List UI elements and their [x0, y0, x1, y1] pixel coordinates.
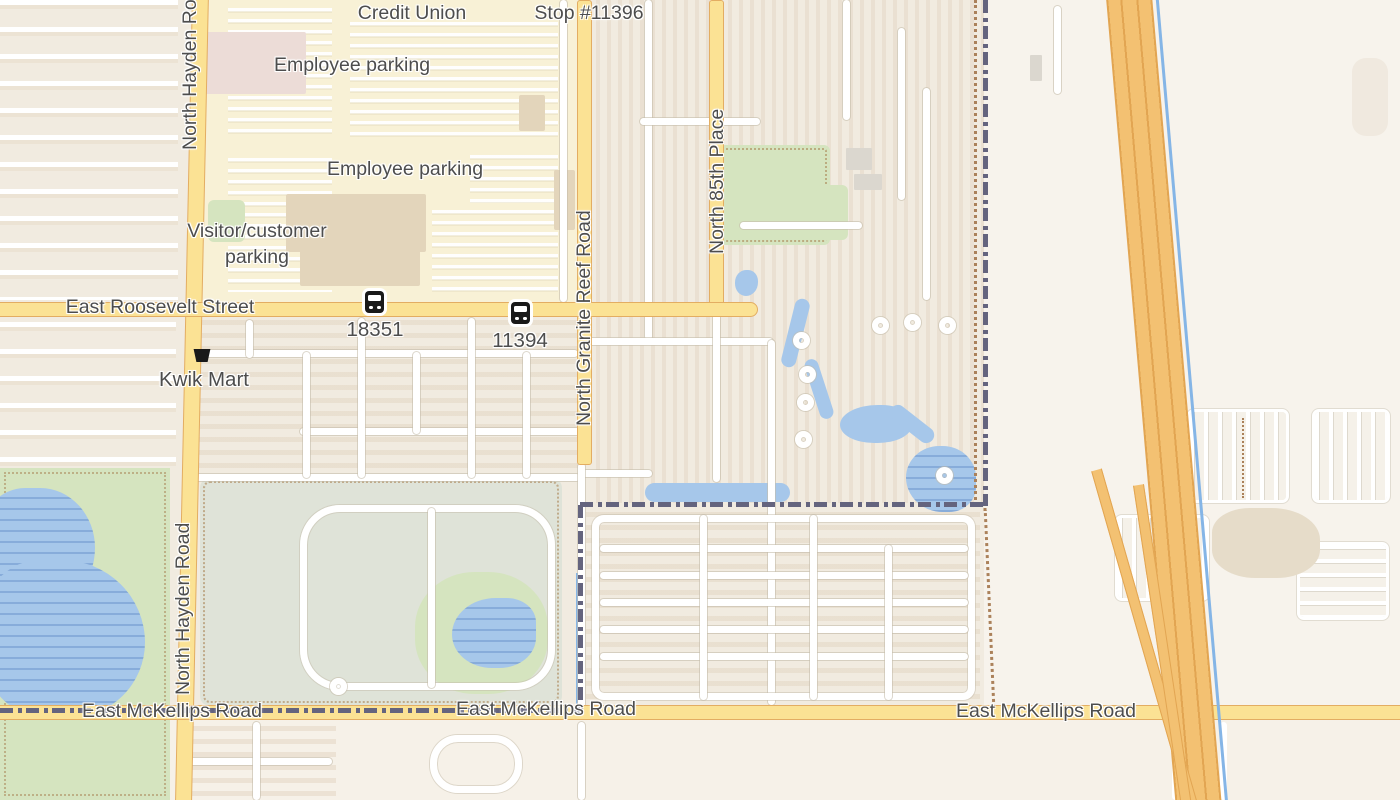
- residential-west-mid: [0, 322, 176, 468]
- visitor-parking-line2: parking: [187, 244, 326, 270]
- cul-de-sac: [797, 394, 814, 411]
- subdivision-streets: [1315, 412, 1387, 500]
- boundary-dash-vertical: [578, 505, 583, 710]
- street: [468, 318, 475, 478]
- street-loop: [430, 735, 522, 793]
- street: [898, 28, 905, 200]
- street: [843, 0, 850, 120]
- path-dotted: [1242, 418, 1244, 498]
- bus-stop-code-18351: 18351: [346, 318, 403, 342]
- bus-icon[interactable]: [365, 291, 384, 313]
- street: [645, 0, 652, 340]
- street: [585, 338, 773, 345]
- road-label-hayden-top: North Hayden Road: [179, 0, 202, 150]
- cul-de-sac: [795, 431, 812, 448]
- street: [600, 572, 968, 579]
- street: [640, 118, 760, 125]
- building: [1352, 58, 1388, 136]
- poi-label-employee-parking-south: Employee parking: [327, 158, 483, 181]
- road-label-mckellips-center: East McKellips Road: [456, 698, 636, 721]
- building-school: [854, 174, 882, 190]
- street: [578, 722, 585, 800]
- street: [740, 222, 862, 229]
- map-canvas[interactable]: Credit Union Stop #11396 Employee parkin…: [0, 0, 1400, 800]
- street: [885, 545, 892, 700]
- street: [600, 599, 968, 606]
- street: [523, 352, 530, 478]
- building-school: [846, 148, 872, 170]
- street: [413, 352, 420, 434]
- street: [700, 515, 707, 700]
- road-label-hayden-mid: North Hayden Road: [172, 523, 195, 695]
- boundary-dash-mid: [580, 502, 986, 507]
- building: [1030, 55, 1042, 81]
- road-label-roosevelt: East Roosevelt Street: [66, 296, 255, 319]
- street: [300, 428, 580, 435]
- street-loop-south-block: [592, 515, 975, 700]
- street: [600, 545, 968, 552]
- road-label-mckellips-west: East McKellips Road: [82, 700, 262, 723]
- street: [713, 312, 720, 482]
- boundary-dash-north: [983, 0, 988, 506]
- road-label-granite-reef: North Granite Reef Road: [573, 210, 596, 426]
- park-northeast-east: [816, 185, 848, 240]
- cul-de-sac: [936, 467, 953, 484]
- road-label-85th-place: North 85th Place: [706, 109, 729, 254]
- street: [253, 722, 260, 800]
- road-label-mckellips-east: East McKellips Road: [956, 700, 1136, 723]
- street: [303, 352, 310, 478]
- street: [560, 0, 567, 302]
- poi-label-employee-parking-north: Employee parking: [274, 54, 430, 77]
- bus-icon[interactable]: [511, 302, 530, 324]
- street: [600, 653, 968, 660]
- poi-label-visitor-parking: Visitor/customer parking: [187, 218, 326, 270]
- bus-stop-code-11394: 11394: [492, 329, 547, 353]
- street: [428, 508, 435, 688]
- poi-label-bus-stop-11396: Stop #11396: [534, 2, 643, 25]
- residential-west-north: [0, 0, 178, 300]
- cul-de-sac: [799, 366, 816, 383]
- building: [1212, 508, 1320, 578]
- street: [923, 88, 930, 300]
- visitor-parking-line1: Visitor/customer: [187, 218, 326, 244]
- cul-de-sac: [330, 678, 347, 695]
- subdivision-streets: [1190, 412, 1286, 500]
- cul-de-sac: [793, 332, 810, 349]
- boundary-dotted: [974, 0, 977, 505]
- poi-label-kwik-mart: Kwik Mart: [159, 368, 249, 392]
- cul-de-sac: [872, 317, 889, 334]
- street: [358, 318, 365, 478]
- street: [246, 320, 253, 358]
- cul-de-sac: [939, 317, 956, 334]
- frontage-road: [1054, 6, 1061, 94]
- street: [600, 626, 968, 633]
- parking-lot-rows: [432, 210, 558, 296]
- parking-lot-rows: [470, 155, 558, 203]
- park-northeast: [712, 145, 830, 245]
- street: [810, 515, 817, 700]
- cul-de-sac: [904, 314, 921, 331]
- street: [580, 470, 652, 477]
- poi-label-credit-union: Credit Union: [358, 2, 466, 25]
- building: [519, 95, 545, 131]
